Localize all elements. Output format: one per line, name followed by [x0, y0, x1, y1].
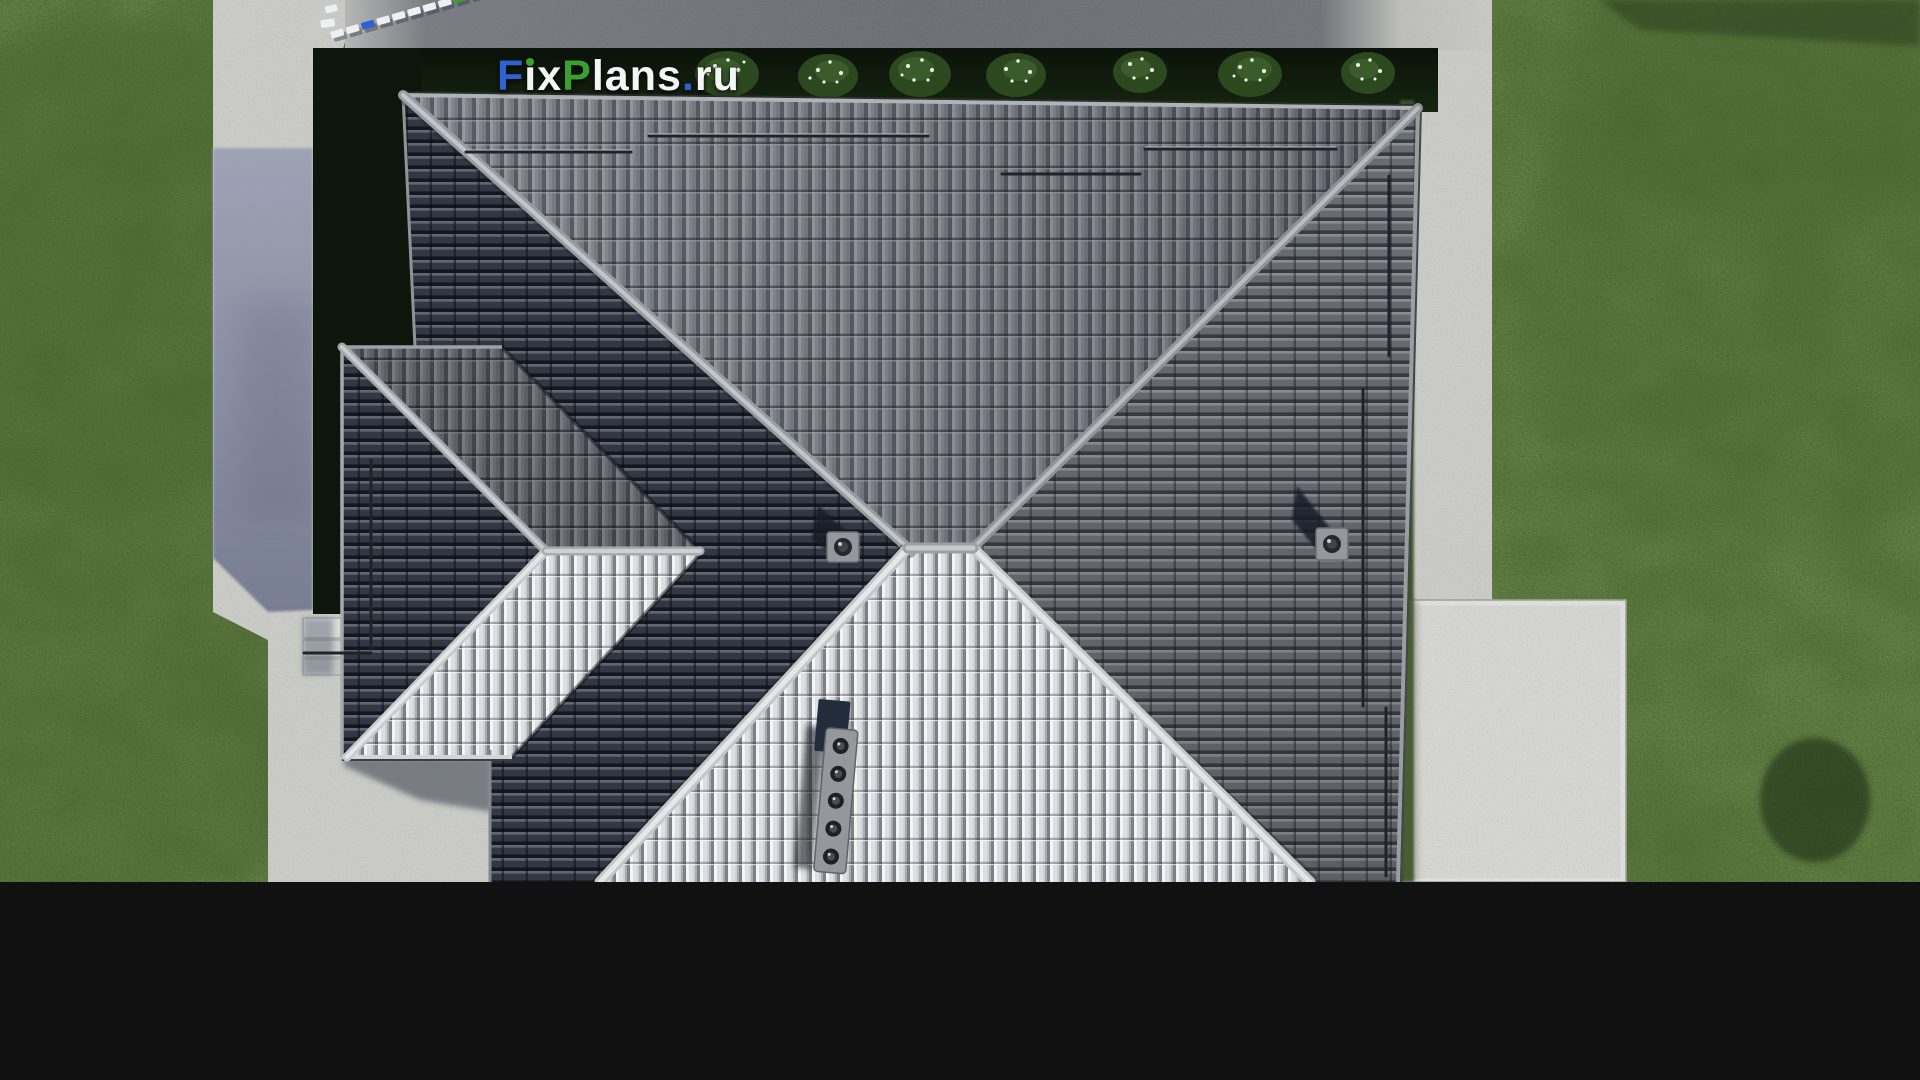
watermark: FixPlans.ru [497, 52, 740, 100]
watermark-p: P [562, 52, 592, 100]
watermark-f: F [497, 52, 524, 100]
aerial-render-scene: FixPlans.ru [0, 0, 1920, 882]
watermark-ru: ru [695, 52, 740, 100]
hedge-bush [986, 53, 1046, 97]
watermark-dot: . [682, 52, 695, 100]
hedge-bush [889, 51, 951, 97]
hedge-bush [1341, 52, 1395, 94]
watermark-i-tittle [526, 58, 534, 66]
hedge-bush [798, 54, 858, 98]
hedge-bush [1218, 51, 1282, 97]
watermark-lans: lans [592, 52, 682, 100]
watermark-text: FixPlans.ru [497, 52, 740, 100]
scene-canvas: FixPlans.ru [0, 0, 1920, 882]
hedge-bush [1113, 51, 1167, 93]
walkway-shadow-core [240, 300, 313, 520]
bush-shadow-blob [1760, 738, 1870, 862]
